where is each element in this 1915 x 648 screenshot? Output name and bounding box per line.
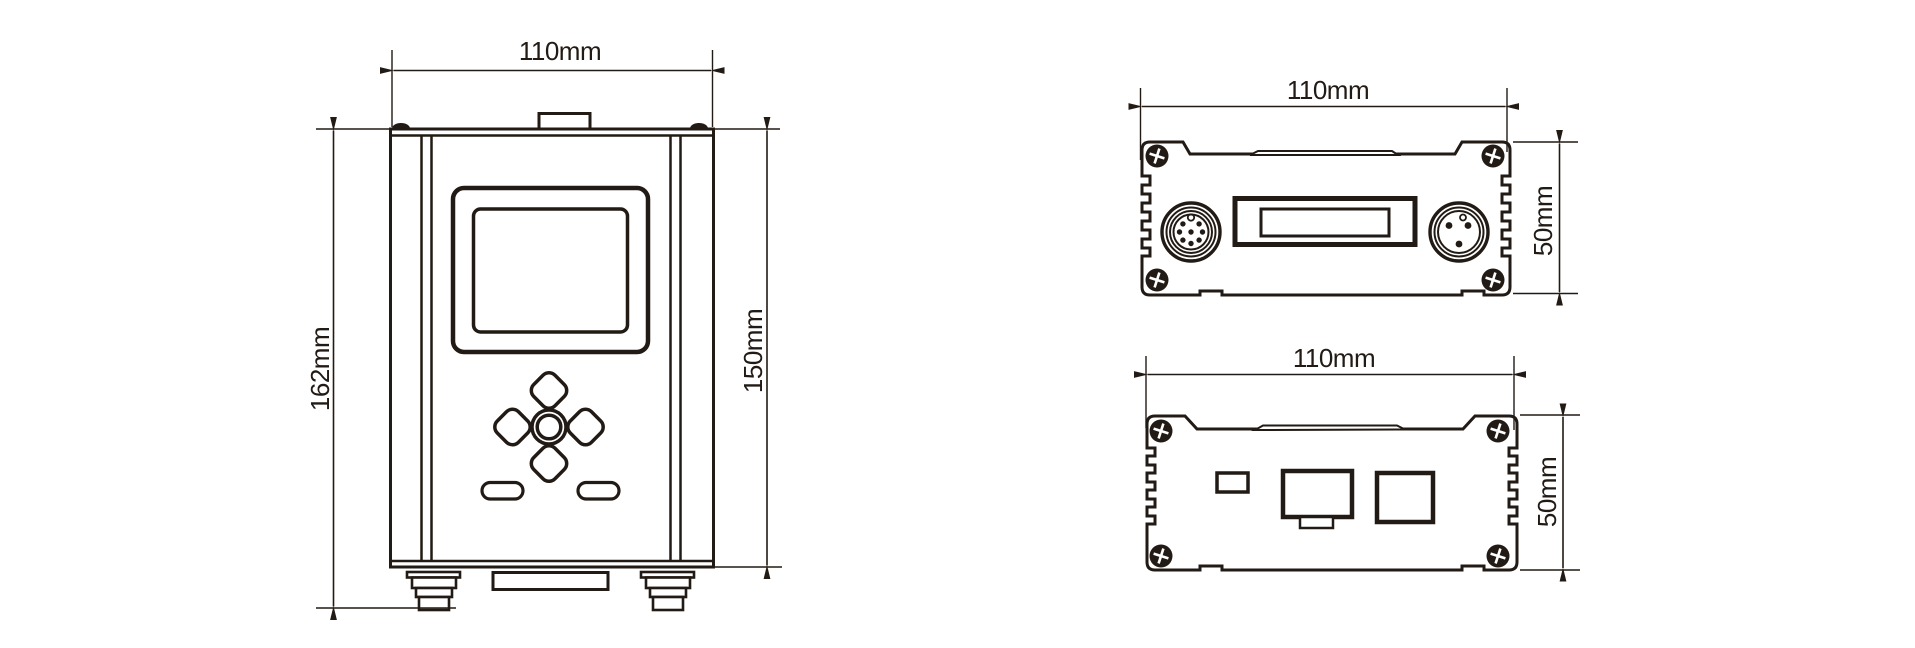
function-button-left	[482, 483, 523, 500]
corner-screw-icon	[1482, 145, 1505, 168]
corner-bump-left	[392, 123, 410, 128]
corner-bump-right	[690, 123, 708, 128]
corner-screw-icon	[1146, 269, 1169, 292]
corner-screw-icon	[1146, 145, 1169, 168]
corner-screw-icon	[1487, 545, 1510, 568]
screen	[474, 209, 628, 332]
corner-screw-icon	[1487, 420, 1510, 443]
corner-screw-icon	[1150, 420, 1173, 443]
bottom-connector-right	[641, 572, 694, 610]
bottom-connector-left	[407, 572, 460, 610]
rear-width-dimension: 110mm	[1141, 75, 1508, 160]
bottom-height-dimension-label: 50mm	[1532, 457, 1562, 527]
technical-drawing-page: 110mm 162mm 150mm	[0, 0, 1915, 648]
round-connector-8pin	[1162, 203, 1220, 261]
function-button-right	[578, 483, 619, 500]
power-switch	[1217, 473, 1248, 492]
bottom-view: 110mm 50mm	[1146, 343, 1580, 570]
top-tab	[539, 114, 590, 130]
corner-screw-icon	[1150, 545, 1173, 568]
front-view: 110mm 162mm 150mm	[305, 36, 782, 610]
display-window-inner	[1261, 209, 1389, 236]
bottom-height-dimension: 50mm	[1520, 415, 1580, 570]
bottom-center-tab	[493, 573, 608, 590]
front-body-height-dimension: 150mm	[715, 129, 782, 567]
rear-view: 110mm 50mm	[1141, 75, 1579, 295]
front-width-dimension-label: 110mm	[519, 36, 601, 66]
corner-screw-icon	[1482, 269, 1505, 292]
front-body-height-dimension-label: 150mm	[738, 309, 768, 393]
top-seam	[1255, 426, 1405, 431]
device-dimension-drawing: 110mm 162mm 150mm	[0, 0, 1915, 648]
bottom-width-dimension: 110mm	[1146, 343, 1514, 430]
square-port	[1377, 473, 1433, 522]
rear-height-dimension: 50mm	[1513, 142, 1578, 294]
bottom-width-dimension-label: 110mm	[1293, 343, 1375, 373]
rear-width-dimension-label: 110mm	[1287, 75, 1369, 105]
front-overall-height-dimension-label: 162mm	[305, 327, 335, 411]
top-seam	[1250, 151, 1398, 155]
rear-height-dimension-label: 50mm	[1528, 186, 1558, 256]
